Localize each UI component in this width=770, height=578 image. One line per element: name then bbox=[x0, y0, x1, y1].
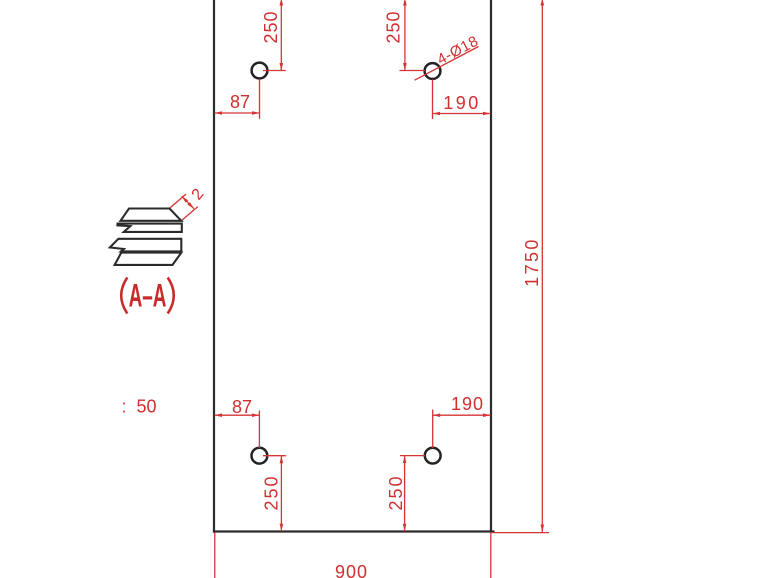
svg-text:900: 900 bbox=[335, 562, 368, 578]
svg-text:87: 87 bbox=[232, 397, 252, 417]
svg-text:250: 250 bbox=[261, 10, 281, 43]
svg-text:250: 250 bbox=[262, 474, 282, 510]
svg-text:: 50: : 50 bbox=[122, 397, 157, 417]
svg-text:190: 190 bbox=[451, 394, 484, 414]
svg-text:A–A: A–A bbox=[129, 277, 167, 314]
svg-text:1750: 1750 bbox=[522, 237, 542, 287]
svg-text:250: 250 bbox=[384, 10, 404, 43]
svg-text:250: 250 bbox=[386, 474, 406, 510]
svg-text:190: 190 bbox=[443, 93, 481, 113]
svg-text:87: 87 bbox=[230, 92, 250, 112]
